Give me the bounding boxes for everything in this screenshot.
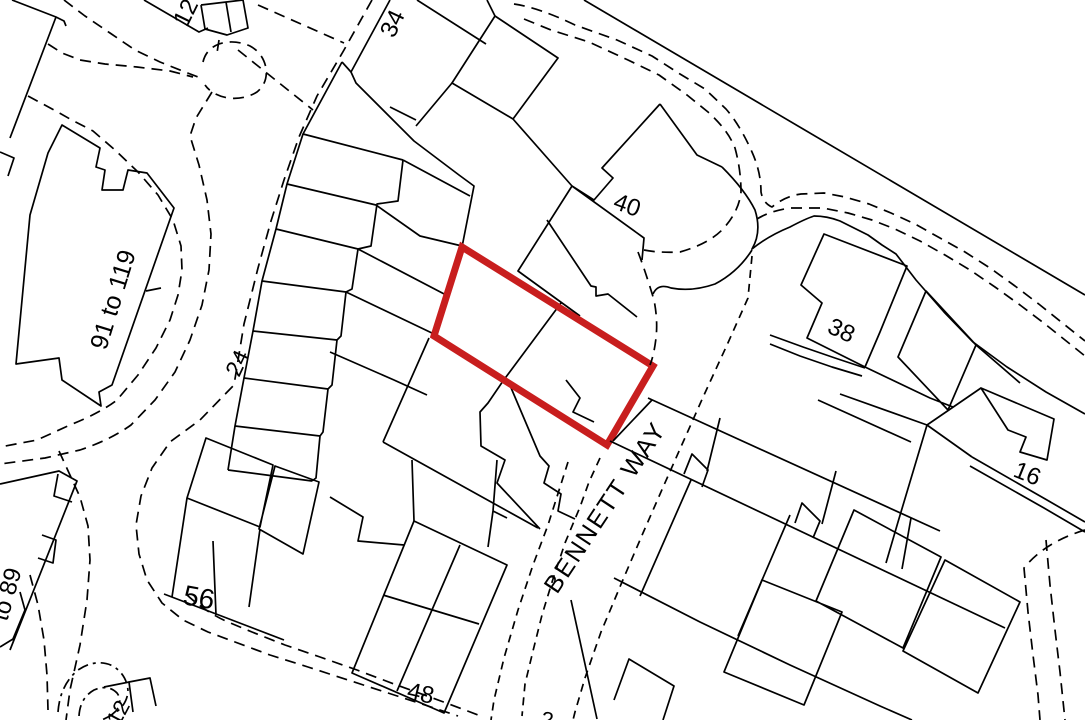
svg-text:56: 56 bbox=[181, 579, 217, 615]
